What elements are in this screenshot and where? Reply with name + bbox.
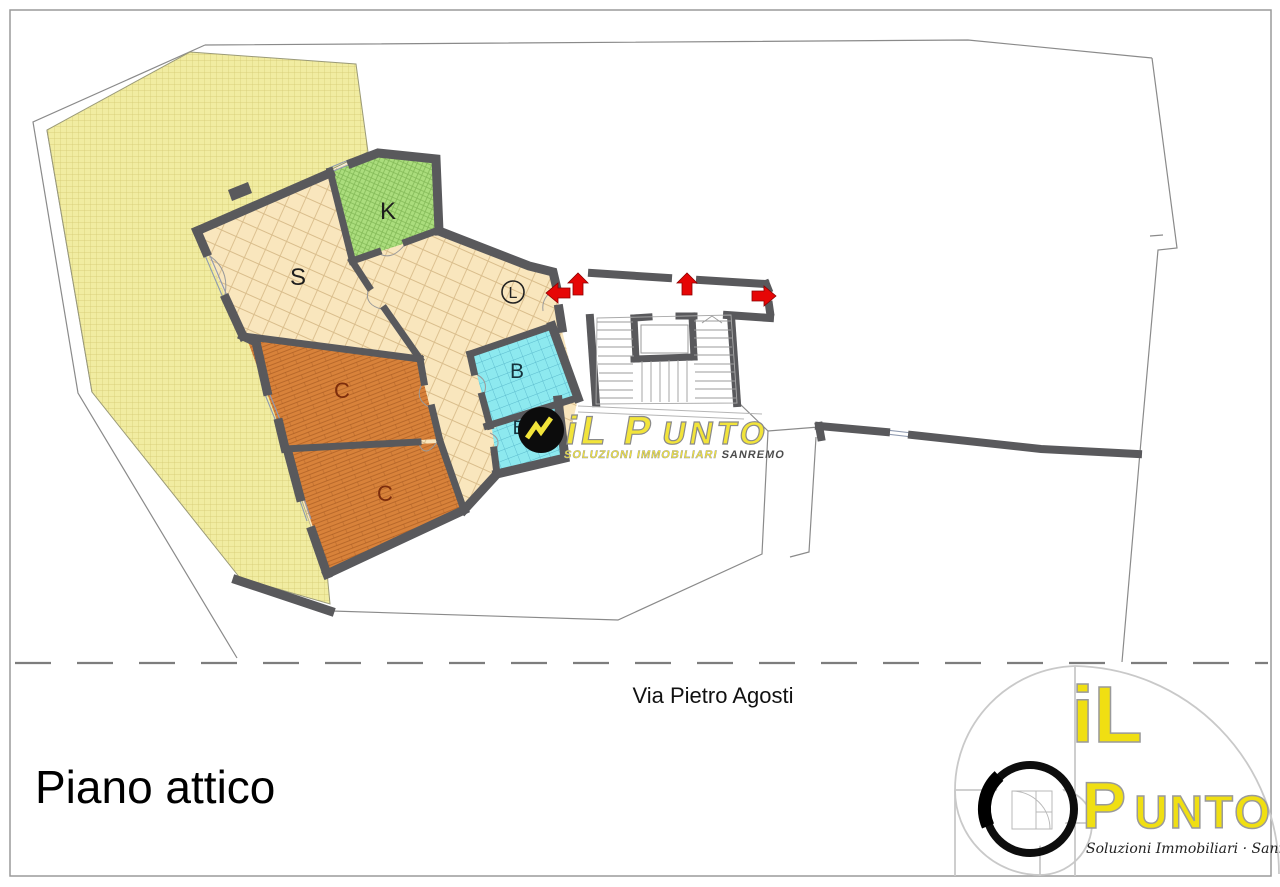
wall-wing-b (912, 435, 1138, 454)
stair-flight-bottom (642, 360, 687, 402)
wall-wing-tick (819, 426, 821, 437)
elevator-letter: L (509, 285, 518, 302)
arrow-up-2-icon (677, 273, 697, 295)
watermark-text: iL P UNTO SOLUZIONI IMMOBILIARI SANREMO (561, 408, 793, 461)
label-camera-1: C (334, 378, 350, 403)
stair-direction-arrow-icon (702, 316, 722, 323)
outline-right (1122, 58, 1177, 662)
agency-logo: iL P UNTO Soluzioni Immobiliari · Sanrem… (955, 666, 1280, 876)
label-soggiorno: S (290, 264, 306, 291)
watermark-brand: iL P UNTO (562, 408, 773, 453)
wall-camera1-right-a (420, 359, 424, 382)
outline-tick (1150, 235, 1163, 236)
logo-word-2a: P (1082, 768, 1128, 842)
wall-corridor-a (592, 273, 668, 278)
watermark-subtitle: SOLUZIONI IMMOBILIARI SANREMO (563, 449, 786, 461)
wall-camera1-left-a (279, 423, 285, 448)
outline-top (205, 40, 1152, 58)
street-label: Via Pietro Agosti (632, 683, 793, 708)
arrow-up-1-icon (568, 273, 588, 295)
elevator-cab (641, 325, 688, 353)
label-cucina: K (380, 198, 396, 225)
watermark-sub-a: SOLUZIONI IMMOBILIARI (563, 449, 723, 461)
wall-elevator-left (634, 318, 636, 359)
logo-word-1: iL (1071, 670, 1142, 759)
logo-word-2b: UNTO (1134, 786, 1272, 838)
wall-corridor-stub-bottom (769, 305, 770, 312)
right-wing-walls (819, 426, 1138, 454)
logo-tagline: Soluzioni Immobiliari · Sanremo (1086, 841, 1280, 857)
logo-ring-bg (992, 771, 1068, 847)
label-bagno-1: B (510, 360, 524, 383)
wall-bagno1-left-a (470, 354, 474, 372)
wall-elevator-right (692, 316, 694, 357)
watermark-brand-b: UNTO (660, 415, 772, 451)
wall-corridor-b (700, 280, 765, 284)
stair-flight-left (597, 322, 634, 398)
logo-word-2: P UNTO (1082, 768, 1272, 842)
label-camera-2: C (377, 481, 393, 506)
watermark-brand-a: iL P (562, 408, 658, 453)
wall-bagno2-left (494, 450, 497, 474)
wall-elevator-bottom (634, 357, 694, 359)
floorplan-page: L S K C C B B iL P UNTO SOLUZIONI IMMOBI… (0, 0, 1280, 887)
outline-bottom-step (790, 437, 816, 557)
floorplan-canvas: L S K C C B B iL P UNTO SOLUZIONI IMMOBI… (0, 0, 1280, 887)
page-title: Piano attico (35, 761, 275, 813)
watermark-sub-b: SANREMO (721, 449, 786, 461)
wall-entry-right (559, 309, 562, 328)
wall-stair-left (590, 318, 596, 403)
wall-wing-a (819, 426, 886, 432)
